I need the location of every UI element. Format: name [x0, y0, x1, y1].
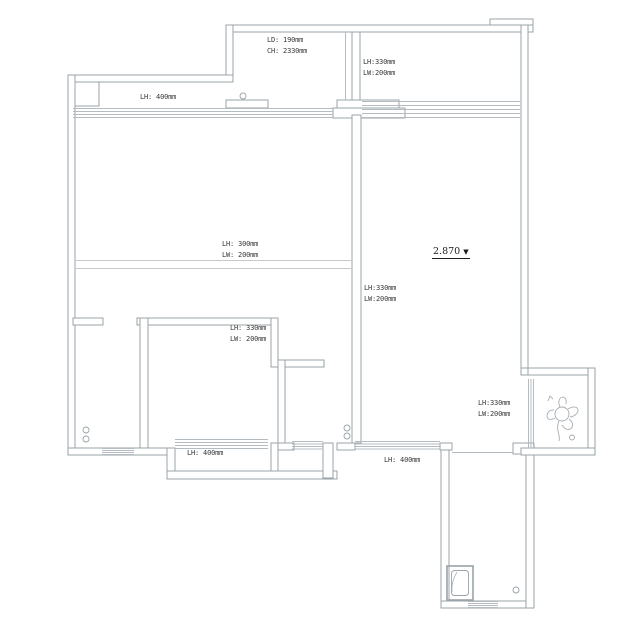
dim-line: LW:200mm [363, 68, 395, 79]
dim-line: LH: 400mm [140, 92, 176, 103]
elevation-value: 2.870 [433, 246, 460, 257]
dim-line: LH: 300mm [222, 239, 258, 250]
label-living-beam: LH: 300mm LW: 200mm [222, 239, 258, 261]
dim-line: LW: 200mm [222, 250, 258, 261]
dim-line: LH:330mm [363, 57, 395, 68]
label-top-left-window: LH: 400mm [140, 92, 176, 103]
dim-line: LH: 400mm [384, 455, 420, 466]
plant-icon [547, 396, 578, 441]
floor-plan-drawing [0, 0, 637, 637]
pipe-icon [513, 587, 519, 593]
elevation-marker: 2.870 ▼ [432, 246, 470, 259]
label-right-alcove: LH:330mm LW:200mm [478, 398, 510, 420]
dim-line: LW:200mm [364, 294, 396, 305]
window-top-left [73, 109, 333, 118]
dim-line: LD: 190mm [267, 35, 307, 46]
label-hall-beam: LH: 330mm LW: 200mm [230, 323, 266, 345]
pipe-icon [240, 93, 246, 99]
pipe-icon [83, 427, 89, 433]
floor-plan-canvas: LD: 190mm CH: 2330mm LH:330mm LW:200mm L… [0, 0, 637, 637]
label-top-room-dims: LD: 190mm CH: 2330mm [267, 35, 307, 57]
label-divider-beam: LH:330mm LW:200mm [364, 283, 396, 305]
window-alcove [529, 379, 534, 448]
label-top-right-beam: LH:330mm LW:200mm [363, 57, 395, 79]
walls [68, 19, 595, 608]
dim-line: LW:200mm [478, 409, 510, 420]
dim-line: LH: 400mm [187, 448, 223, 459]
balcony-basin [447, 566, 473, 600]
label-bottom-right-window: LH: 400mm [384, 455, 420, 466]
dim-line: LH: 330mm [230, 323, 266, 334]
dim-line: LW: 200mm [230, 334, 266, 345]
dim-line: LH:330mm [364, 283, 396, 294]
pipe-icon [344, 433, 350, 439]
label-bottom-bay-window: LH: 400mm [187, 448, 223, 459]
pipe-icon [344, 425, 350, 431]
elevation-triangle-icon: ▼ [463, 248, 468, 256]
window-bottom-right-room [355, 442, 440, 450]
dim-line: CH: 2330mm [267, 46, 307, 57]
beam-lines [75, 261, 352, 269]
dim-line: LH:330mm [478, 398, 510, 409]
window-bathroom [292, 442, 323, 450]
pipe-icon [83, 436, 89, 442]
